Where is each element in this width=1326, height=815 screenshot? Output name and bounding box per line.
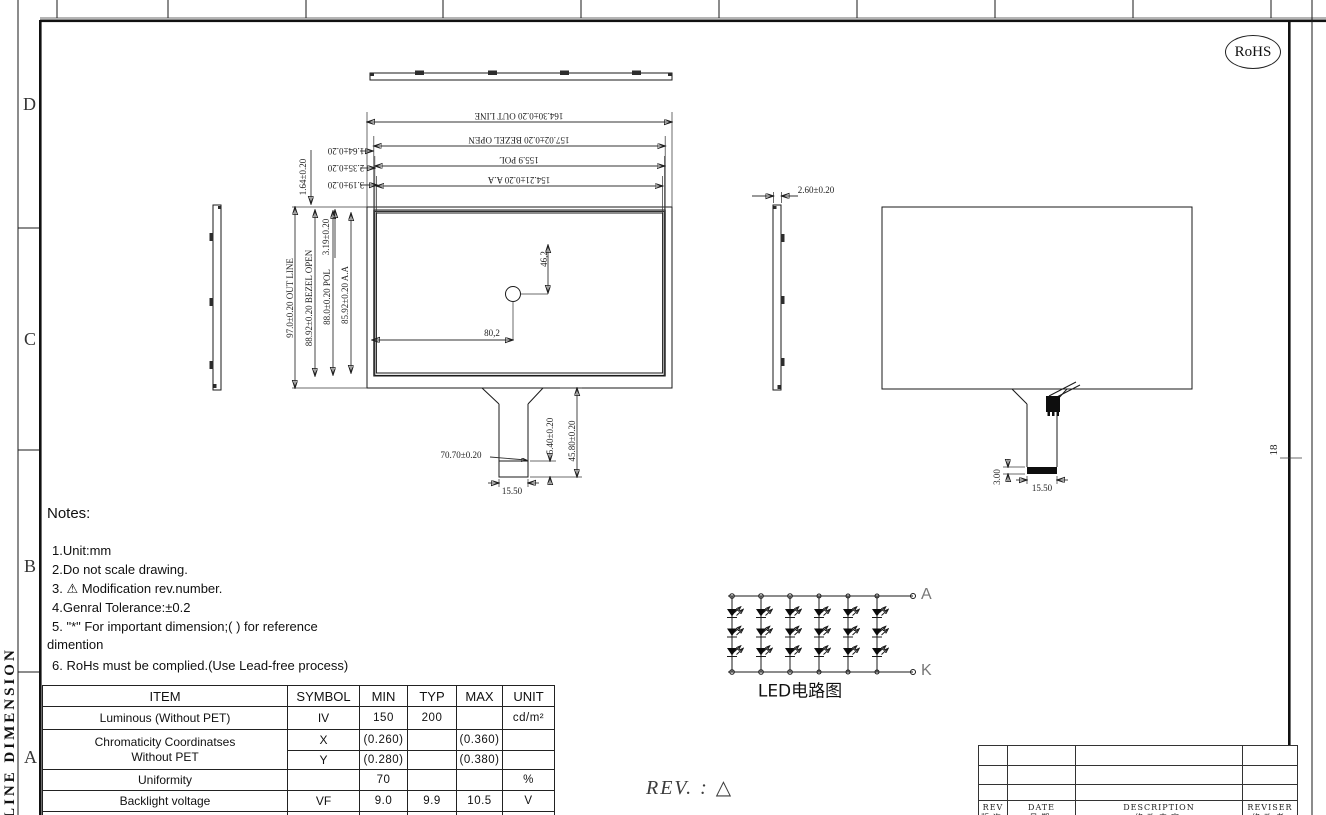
note-item: 6. RoHs must be complied.(Use Lead-free … [52, 658, 348, 673]
dim-bezel-width: 157.02±0.20 BEZEL OPEN [468, 135, 569, 145]
front-view-outline [367, 207, 672, 388]
top-view-bar [370, 71, 672, 81]
led-circuit-caption: LED电路图 [758, 677, 842, 702]
cell-typ [408, 730, 457, 751]
table-row: Uniformity 70 % [43, 770, 555, 791]
col-unit: UNIT [503, 686, 555, 707]
dim-aa-width: 154.21±0.20 A.A [488, 175, 550, 185]
cell-typ: 120 [408, 812, 457, 815]
table-row: Chromaticity Coordinatses Without PET X … [43, 730, 555, 751]
cell-max: 10.5 [457, 791, 503, 812]
cell-min: (0.260) [360, 730, 408, 751]
rev-empty-row [979, 766, 1298, 785]
note-item: 2.Do not scale drawing. [52, 562, 188, 577]
cell-max: (0.360) [457, 730, 503, 751]
cell-min: 150 [360, 707, 408, 730]
cell-unit: V [503, 791, 555, 812]
cell-typ: 9.9 [408, 791, 457, 812]
cell-unit [503, 751, 555, 770]
rev-col-date: DATE日期 [1008, 801, 1076, 815]
dim-hole-y: 46,2 [539, 251, 549, 267]
rev-col-description: DESCRIPTION修改内容 [1076, 801, 1243, 815]
dim-bezel-height: 88.92±0.20 BEZEL OPEN [304, 250, 314, 347]
cathode-label: K [921, 662, 932, 680]
note-item: dimention [47, 637, 103, 652]
cell-symbol: IF [288, 812, 360, 815]
cell-max [457, 770, 503, 791]
cell-item: Chromaticity Coordinatses Without PET [43, 730, 288, 770]
dim-aa-height: 85.92±0.20 A.A [340, 266, 350, 324]
cell-item: Luminous (Without PET) [43, 707, 288, 730]
dim-rear-fpc-width: 15.50 [1032, 483, 1052, 493]
table-row: Backlight voltage VF 9.0 9.9 10.5 V [43, 791, 555, 812]
fpc-stiffener-hatch [499, 461, 528, 477]
cell-symbol: VF [288, 791, 360, 812]
rohs-badge: RoHS [1225, 35, 1281, 69]
dim-rear-stiffener: 3.00 [992, 469, 1002, 485]
cell-typ: 200 [408, 707, 457, 730]
rev-empty-row [979, 785, 1298, 801]
dim-pol-height: 88.0±0.20 POL [322, 269, 332, 325]
zone-row-d: D [23, 94, 36, 115]
cell-symbol: Y [288, 751, 360, 770]
zone-row-c: C [24, 329, 36, 350]
rev-empty-row [979, 746, 1298, 766]
dim-hole-x: 80,2 [484, 328, 500, 338]
zone-row-a: A [24, 747, 37, 768]
rev-note: REV. : △ [646, 775, 733, 800]
note-item: 1.Unit:mm [52, 543, 111, 558]
dim-outline-width: 164.30±0.20 OUT LINE [475, 111, 564, 121]
note-item: 5. "*" For important dimension;( ) for r… [52, 619, 318, 634]
rohs-label: RoHS [1235, 44, 1272, 61]
cell-unit: mA [503, 812, 555, 815]
cell-unit: % [503, 770, 555, 791]
table-row: Luminous (Without PET) IV 150 200 cd/m² [43, 707, 555, 730]
cell-unit [503, 730, 555, 751]
col-typ: TYP [408, 686, 457, 707]
dim-side-thickness: 2.60±0.20 [798, 185, 834, 195]
cell-item-line1: Chromaticity Coordinatses [43, 735, 287, 749]
right-zone-label: 18 [1268, 445, 1280, 456]
col-item: ITEM [43, 686, 288, 707]
dim-outline-height: 97.0±0.20 OUT LINE [285, 258, 295, 338]
note-item: 4.Genral Tolerance:±0.2 [52, 600, 190, 615]
dim-fpc-length: 45.80±0.20 [567, 421, 577, 462]
dim-fpc-width: 15.50 [502, 486, 522, 496]
notes-title: Notes: [47, 505, 90, 522]
spec-header-row: ITEM SYMBOL MIN TYP MAX UNIT [43, 686, 555, 707]
cell-item: Uniformity [43, 770, 288, 791]
cell-item: Backlight voltage [43, 791, 288, 812]
cell-min: (0.280) [360, 751, 408, 770]
cell-max [457, 707, 503, 730]
table-row: Backlight current IF 120 mA [43, 812, 555, 815]
cell-symbol: IV [288, 707, 360, 730]
right-side-view [752, 192, 798, 390]
dim-pol-width: 155.9 POL [499, 155, 539, 165]
anode-label: A [921, 586, 932, 604]
rear-view [882, 207, 1192, 484]
col-min: MIN [360, 686, 408, 707]
sheet-side-title: LINE DIMENSION [2, 647, 19, 815]
led-circuit-diagram [727, 594, 916, 675]
rev-col-rev: REV版次 [979, 801, 1008, 815]
left-side-view [210, 205, 222, 390]
cell-typ [408, 751, 457, 770]
cell-min: 70 [360, 770, 408, 791]
revision-table: REV版次 DATE日期 DESCRIPTION修改内容 REVISER修改者 [978, 745, 1298, 815]
cell-max: (0.380) [457, 751, 503, 770]
note-item: 3. ⚠ Modification rev.number. [52, 581, 222, 597]
dim-fpc-leader: 70.70±0.20 [441, 450, 482, 460]
rev-header-row: REV版次 DATE日期 DESCRIPTION修改内容 REVISER修改者 [979, 801, 1298, 815]
drawing-sheet: D C B A LINE DIMENSION 18 RoHS 164.30±0.… [0, 0, 1326, 815]
cell-unit: cd/m² [503, 707, 555, 730]
dim-top-gap3-vertical: 3.19±0.20 [321, 219, 331, 255]
dim-top-gap2: 2.35±0.20 [328, 163, 364, 173]
cell-min [360, 812, 408, 815]
fpc-connector [1046, 396, 1060, 412]
center-hole [506, 287, 521, 302]
dim-top-gap1-vertical: 1.64±0.20 [298, 159, 308, 195]
dim-fpc-stiffener: 5.40±0.20 [545, 418, 555, 454]
col-max: MAX [457, 686, 503, 707]
cell-symbol [288, 770, 360, 791]
cell-item-line2: Without PET [43, 750, 287, 764]
zone-row-b: B [24, 556, 36, 577]
col-symbol: SYMBOL [288, 686, 360, 707]
cell-symbol: X [288, 730, 360, 751]
cell-max [457, 812, 503, 815]
spec-table: ITEM SYMBOL MIN TYP MAX UNIT Luminous (W… [42, 685, 555, 815]
cell-typ [408, 770, 457, 791]
cell-min: 9.0 [360, 791, 408, 812]
rear-stiffener-bar [1027, 467, 1057, 474]
rev-col-reviser: REVISER修改者 [1243, 801, 1298, 815]
dim-top-gap1: 1.64±0.20 [328, 146, 364, 156]
cell-item: Backlight current [43, 812, 288, 815]
dim-top-gap3: 3.19±0.20 [328, 180, 364, 190]
